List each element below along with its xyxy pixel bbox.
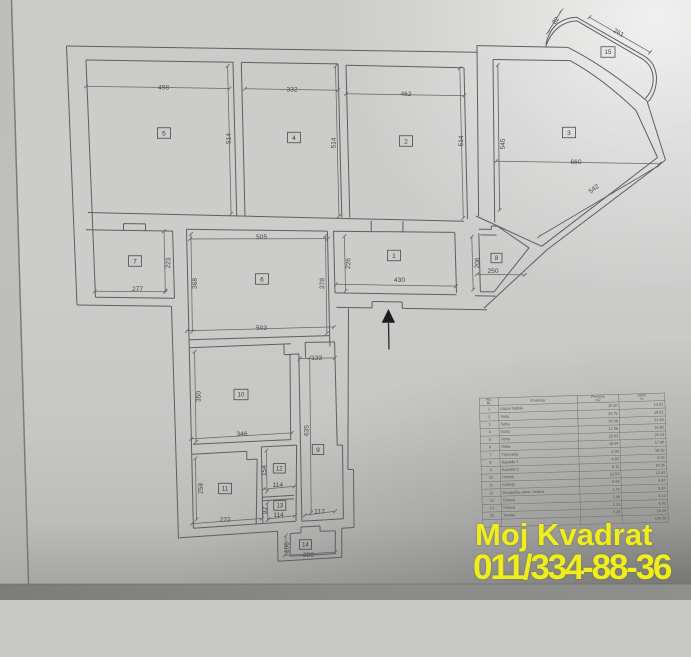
svg-text:222: 222 bbox=[220, 516, 231, 523]
svg-text:92: 92 bbox=[262, 506, 269, 514]
svg-text:4: 4 bbox=[292, 135, 296, 142]
svg-text:106: 106 bbox=[283, 542, 290, 553]
svg-text:332: 332 bbox=[286, 86, 297, 93]
svg-text:1: 1 bbox=[392, 253, 396, 260]
svg-text:660: 660 bbox=[570, 159, 581, 166]
svg-text:133: 133 bbox=[311, 355, 322, 362]
svg-text:378: 378 bbox=[319, 278, 326, 289]
svg-text:15: 15 bbox=[605, 49, 612, 56]
svg-text:503: 503 bbox=[256, 325, 267, 332]
svg-text:3: 3 bbox=[567, 130, 571, 137]
svg-text:498: 498 bbox=[158, 84, 169, 91]
svg-text:13: 13 bbox=[276, 504, 283, 510]
svg-text:250: 250 bbox=[487, 268, 498, 275]
svg-text:7: 7 bbox=[133, 258, 137, 265]
svg-text:117: 117 bbox=[314, 508, 325, 515]
svg-text:635: 635 bbox=[303, 425, 310, 436]
svg-text:14: 14 bbox=[302, 543, 309, 549]
svg-text:226: 226 bbox=[345, 258, 352, 269]
svg-text:200: 200 bbox=[303, 552, 314, 559]
svg-text:114: 114 bbox=[273, 512, 284, 519]
svg-text:505: 505 bbox=[256, 234, 267, 241]
svg-text:545: 545 bbox=[500, 138, 507, 149]
svg-text:9: 9 bbox=[316, 447, 320, 454]
svg-text:350: 350 bbox=[195, 391, 202, 402]
svg-text:430: 430 bbox=[394, 277, 405, 284]
svg-text:223: 223 bbox=[165, 257, 172, 268]
svg-text:277: 277 bbox=[132, 286, 143, 293]
svg-text:154: 154 bbox=[261, 465, 268, 476]
svg-text:6: 6 bbox=[260, 276, 264, 283]
svg-text:5: 5 bbox=[162, 130, 166, 137]
svg-text:114: 114 bbox=[273, 482, 284, 489]
svg-text:12: 12 bbox=[276, 466, 283, 472]
svg-text:258: 258 bbox=[198, 483, 205, 494]
svg-text:462: 462 bbox=[400, 91, 411, 98]
svg-text:206: 206 bbox=[474, 257, 481, 268]
svg-text:514: 514 bbox=[226, 133, 233, 144]
svg-text:346: 346 bbox=[236, 431, 247, 438]
svg-text:2: 2 bbox=[404, 138, 408, 145]
svg-text:514: 514 bbox=[458, 135, 465, 146]
svg-text:514: 514 bbox=[330, 137, 337, 148]
svg-text:11: 11 bbox=[222, 486, 229, 493]
svg-text:10: 10 bbox=[238, 392, 245, 399]
svg-text:368: 368 bbox=[192, 278, 199, 289]
